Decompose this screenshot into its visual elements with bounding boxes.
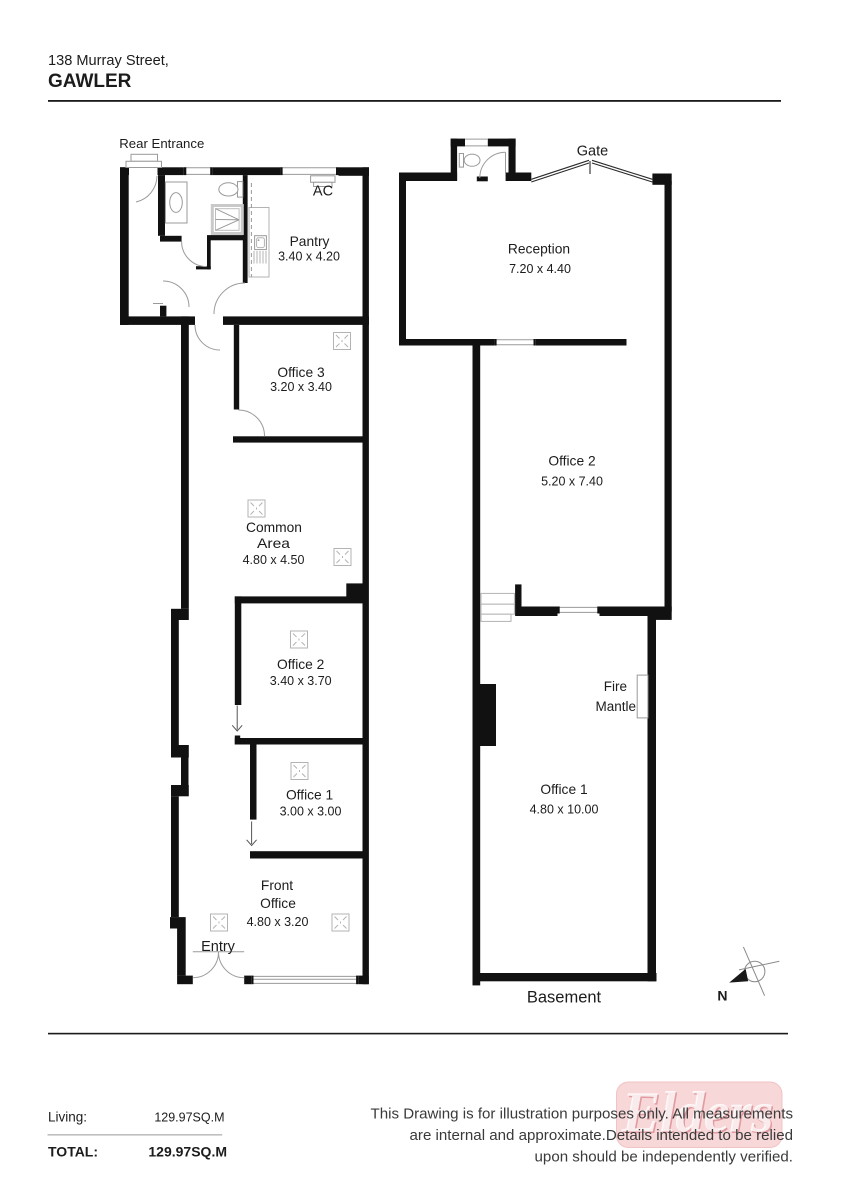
svg-text:5.20 x 7.40: 5.20 x 7.40 (541, 475, 603, 489)
svg-text:Basement: Basement (527, 989, 602, 1007)
svg-text:Gate: Gate (577, 144, 608, 160)
svg-text:Common: Common (246, 520, 302, 535)
svg-text:Front: Front (261, 878, 293, 893)
svg-text:AC: AC (313, 184, 333, 200)
svg-text:Rear Entrance: Rear Entrance (119, 136, 204, 151)
svg-text:4.80 x 3.20: 4.80 x 3.20 (247, 915, 309, 929)
svg-text:Office 2: Office 2 (277, 657, 324, 672)
svg-text:4.80 x 10.00: 4.80 x 10.00 (530, 803, 599, 817)
svg-text:3.20 x 3.40: 3.20 x 3.40 (270, 380, 332, 394)
svg-text:Living:: Living: (48, 1110, 87, 1125)
svg-text:Office 3: Office 3 (277, 365, 325, 380)
svg-text:This Drawing is for illustrati: This Drawing is for illustration purpose… (370, 1106, 793, 1123)
svg-text:129.97SQ.M: 129.97SQ.M (148, 1144, 227, 1160)
svg-text:Area: Area (257, 536, 290, 551)
svg-text:Mantle: Mantle (595, 699, 636, 714)
svg-text:TOTAL:: TOTAL: (48, 1144, 98, 1160)
svg-text:upon should be independently v: upon should be independently verified. (535, 1149, 793, 1166)
svg-text:129.97SQ.M: 129.97SQ.M (154, 1111, 224, 1125)
svg-text:Fire: Fire (604, 679, 627, 694)
svg-text:Entry: Entry (201, 939, 236, 955)
svg-text:N: N (717, 988, 727, 1004)
svg-text:Reception: Reception (508, 242, 570, 257)
svg-text:are internal and approximate.D: are internal and approximate.Details int… (410, 1127, 793, 1144)
svg-text:Office 1: Office 1 (286, 788, 333, 803)
svg-text:3.40 x 4.20: 3.40 x 4.20 (278, 250, 340, 264)
svg-text:3.40 x 3.70: 3.40 x 3.70 (270, 674, 332, 688)
svg-text:GAWLER: GAWLER (48, 71, 132, 92)
svg-text:138 Murray Street,: 138 Murray Street, (48, 53, 169, 69)
svg-text:7.20 x 4.40: 7.20 x 4.40 (509, 262, 571, 276)
svg-text:4.80 x 4.50: 4.80 x 4.50 (243, 553, 305, 567)
svg-text:Office: Office (260, 896, 296, 911)
svg-text:3.00 x 3.00: 3.00 x 3.00 (280, 805, 342, 819)
svg-text:Office 2: Office 2 (548, 454, 595, 469)
svg-text:Pantry: Pantry (290, 234, 330, 249)
svg-text:Office 1: Office 1 (540, 782, 587, 797)
